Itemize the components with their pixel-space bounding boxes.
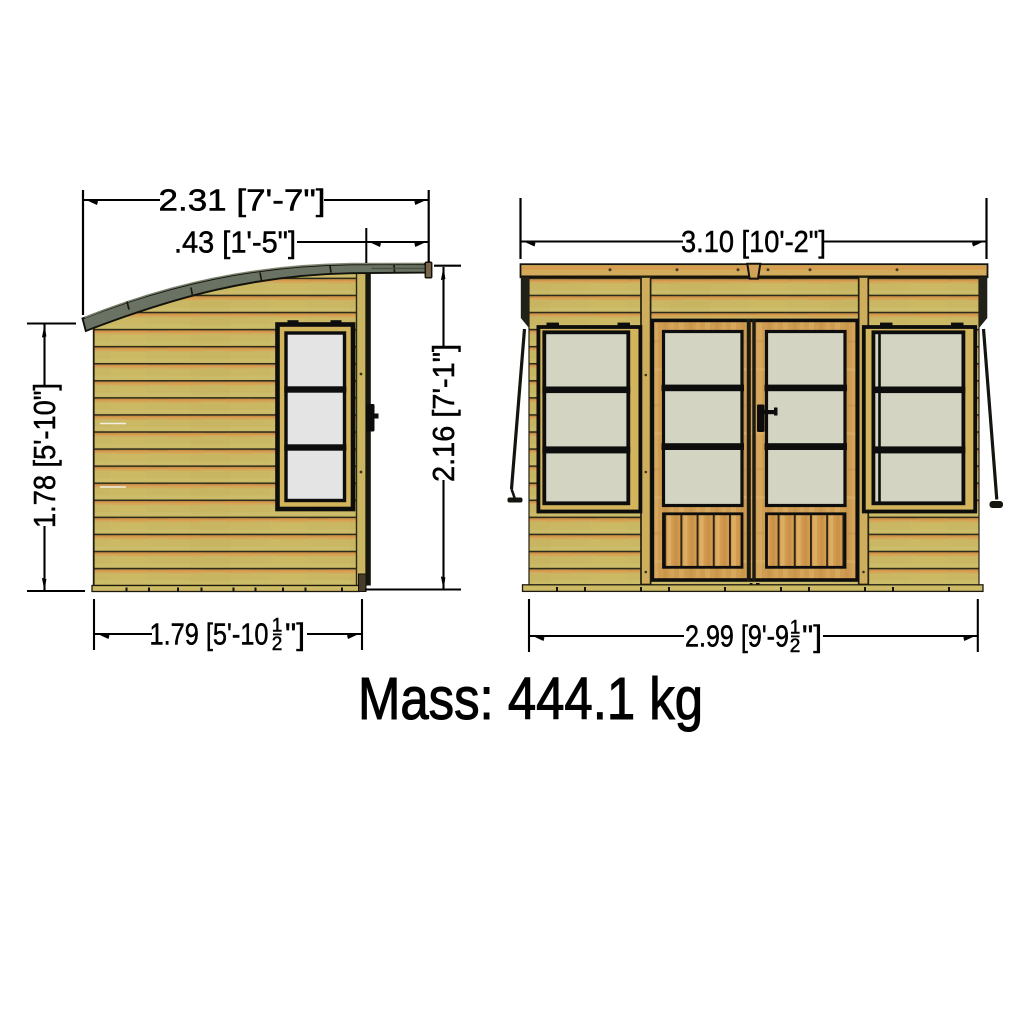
svg-text:2: 2 [272,634,283,655]
svg-text:2: 2 [790,636,801,657]
svg-text:Mass: 444.1 kg: Mass: 444.1 kg [358,666,703,732]
svg-text:2.99 [9'-9: 2.99 [9'-9 [685,620,789,654]
svg-text:3.10 [10'-2"]: 3.10 [10'-2"] [681,225,826,259]
svg-text:2.16 [7'-1"]: 2.16 [7'-1"] [427,344,461,482]
svg-text:1.79 [5'-10: 1.79 [5'-10 [150,618,269,652]
svg-text:"]: "] [285,618,305,652]
svg-text:1.78 [5'-10"]: 1.78 [5'-10"] [28,383,62,528]
svg-text:"]: "] [802,620,822,654]
svg-text:.43 [1'-5"]: .43 [1'-5"] [174,226,296,260]
svg-text:2.31 [7'-7"]: 2.31 [7'-7"] [159,184,326,218]
